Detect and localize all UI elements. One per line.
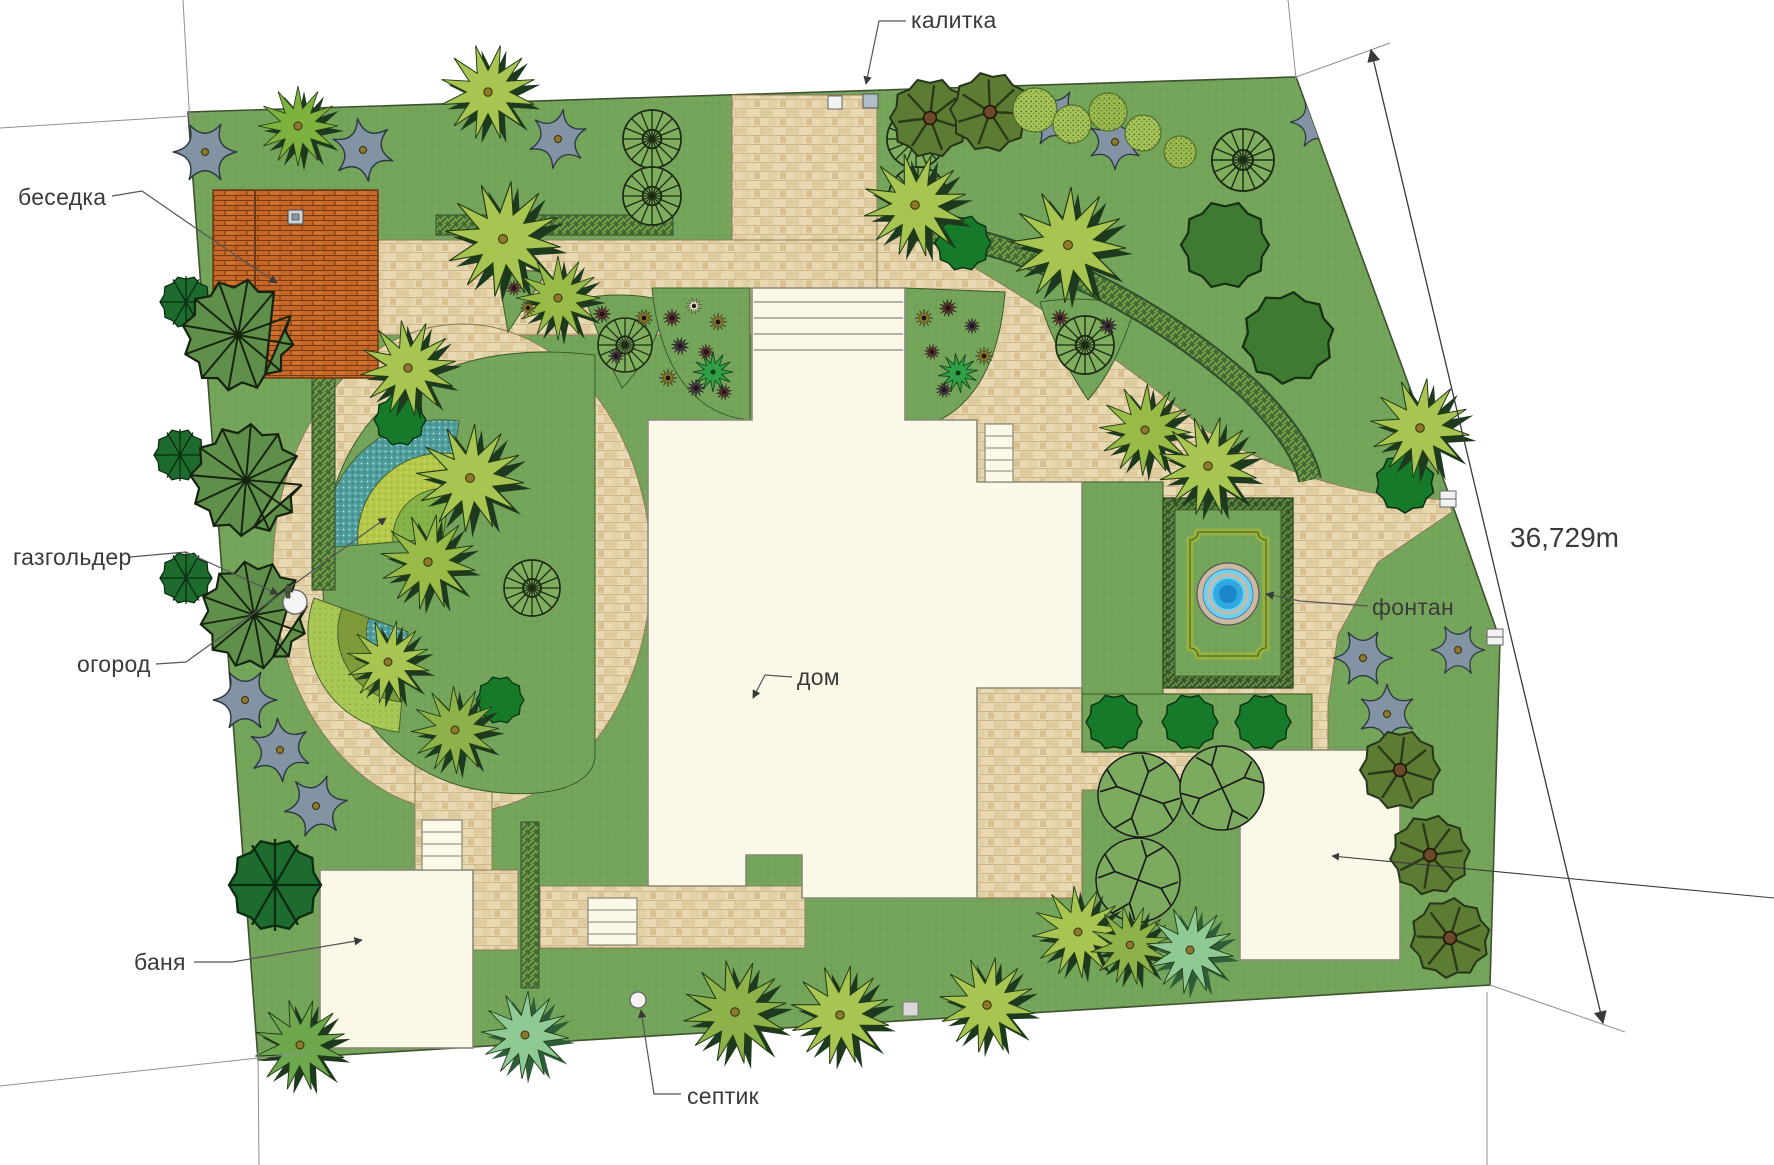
label-garden: огород bbox=[77, 651, 151, 678]
side-steps bbox=[985, 424, 1013, 482]
lawn-hatch-marker bbox=[903, 1002, 918, 1016]
entrance-path bbox=[732, 95, 877, 245]
site-plan-drawing bbox=[0, 0, 1774, 1165]
septic-marker bbox=[630, 992, 646, 1008]
fountain bbox=[1197, 563, 1259, 625]
south-path bbox=[540, 886, 805, 948]
dimension-text: 36,729m bbox=[1510, 522, 1619, 554]
side-gate-2 bbox=[1487, 629, 1503, 645]
label-fountain: фонтан bbox=[1372, 594, 1454, 621]
label-gasholder: газгольдер bbox=[13, 544, 132, 571]
gate-leader bbox=[866, 21, 906, 84]
fountain-garden bbox=[1163, 498, 1293, 688]
label-bathhouse: баня bbox=[134, 949, 186, 976]
label-gazebo: беседка bbox=[18, 184, 106, 211]
path-beside-bathhouse bbox=[473, 870, 518, 950]
side-gate-1 bbox=[1440, 491, 1456, 507]
label-septic: септик bbox=[687, 1083, 759, 1110]
landscape-plan: беседка калитка газгольдер огород баня с… bbox=[0, 0, 1774, 1165]
label-gate: калитка bbox=[911, 7, 997, 34]
bottom-steps bbox=[588, 898, 637, 945]
wicket-gate bbox=[863, 94, 878, 108]
label-house: дом bbox=[797, 664, 840, 691]
